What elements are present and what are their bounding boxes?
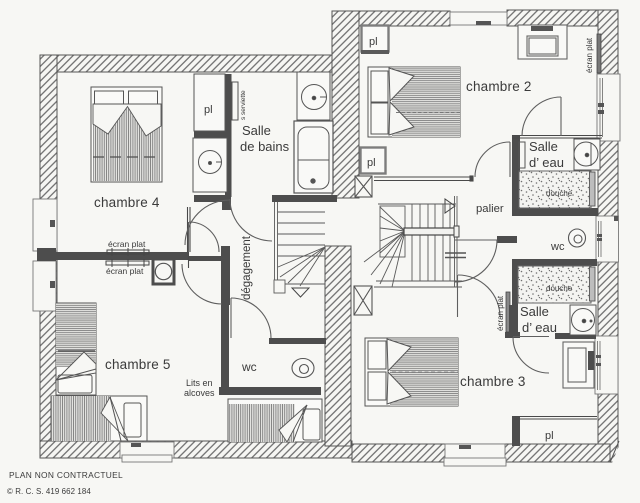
svg-text:de bains: de bains [240, 139, 290, 154]
svg-text:© R. C. S. 419 662 184: © R. C. S. 419 662 184 [7, 487, 91, 496]
svg-text:écran plat: écran plat [106, 266, 144, 276]
svg-text:dégagement: dégagement [241, 235, 253, 300]
svg-text:écran plat: écran plat [585, 37, 594, 73]
svg-text:palier: palier [476, 203, 504, 215]
svg-text:chambre 2: chambre 2 [466, 79, 532, 94]
svg-text:Salle: Salle [242, 123, 271, 138]
svg-text:wc: wc [241, 360, 257, 374]
svg-text:douche: douche [546, 189, 573, 198]
svg-text:d’ eau: d’ eau [522, 320, 557, 335]
svg-text:chambre 4: chambre 4 [94, 195, 160, 210]
svg-text:d’ eau: d’ eau [529, 155, 564, 170]
svg-text:chambre 3: chambre 3 [460, 374, 526, 389]
svg-text:wc: wc [550, 241, 565, 253]
svg-text:écran plat: écran plat [108, 239, 146, 249]
svg-text:pl: pl [367, 157, 376, 169]
svg-text:pl: pl [369, 36, 378, 48]
svg-text:chambre 5: chambre 5 [105, 357, 171, 372]
svg-text:douche: douche [546, 284, 573, 293]
svg-text:pl: pl [545, 430, 554, 442]
svg-text:PLAN NON CONTRACTUEL: PLAN NON CONTRACTUEL [9, 470, 123, 480]
svg-text:écran plat: écran plat [496, 295, 505, 331]
svg-text:Lits en: Lits en [186, 378, 213, 388]
svg-text:pl: pl [204, 104, 213, 116]
svg-text:s serviette: s serviette [240, 90, 247, 120]
svg-text:alcoves: alcoves [184, 388, 215, 398]
svg-text:Salle: Salle [529, 139, 558, 154]
svg-text:Salle: Salle [520, 304, 549, 319]
